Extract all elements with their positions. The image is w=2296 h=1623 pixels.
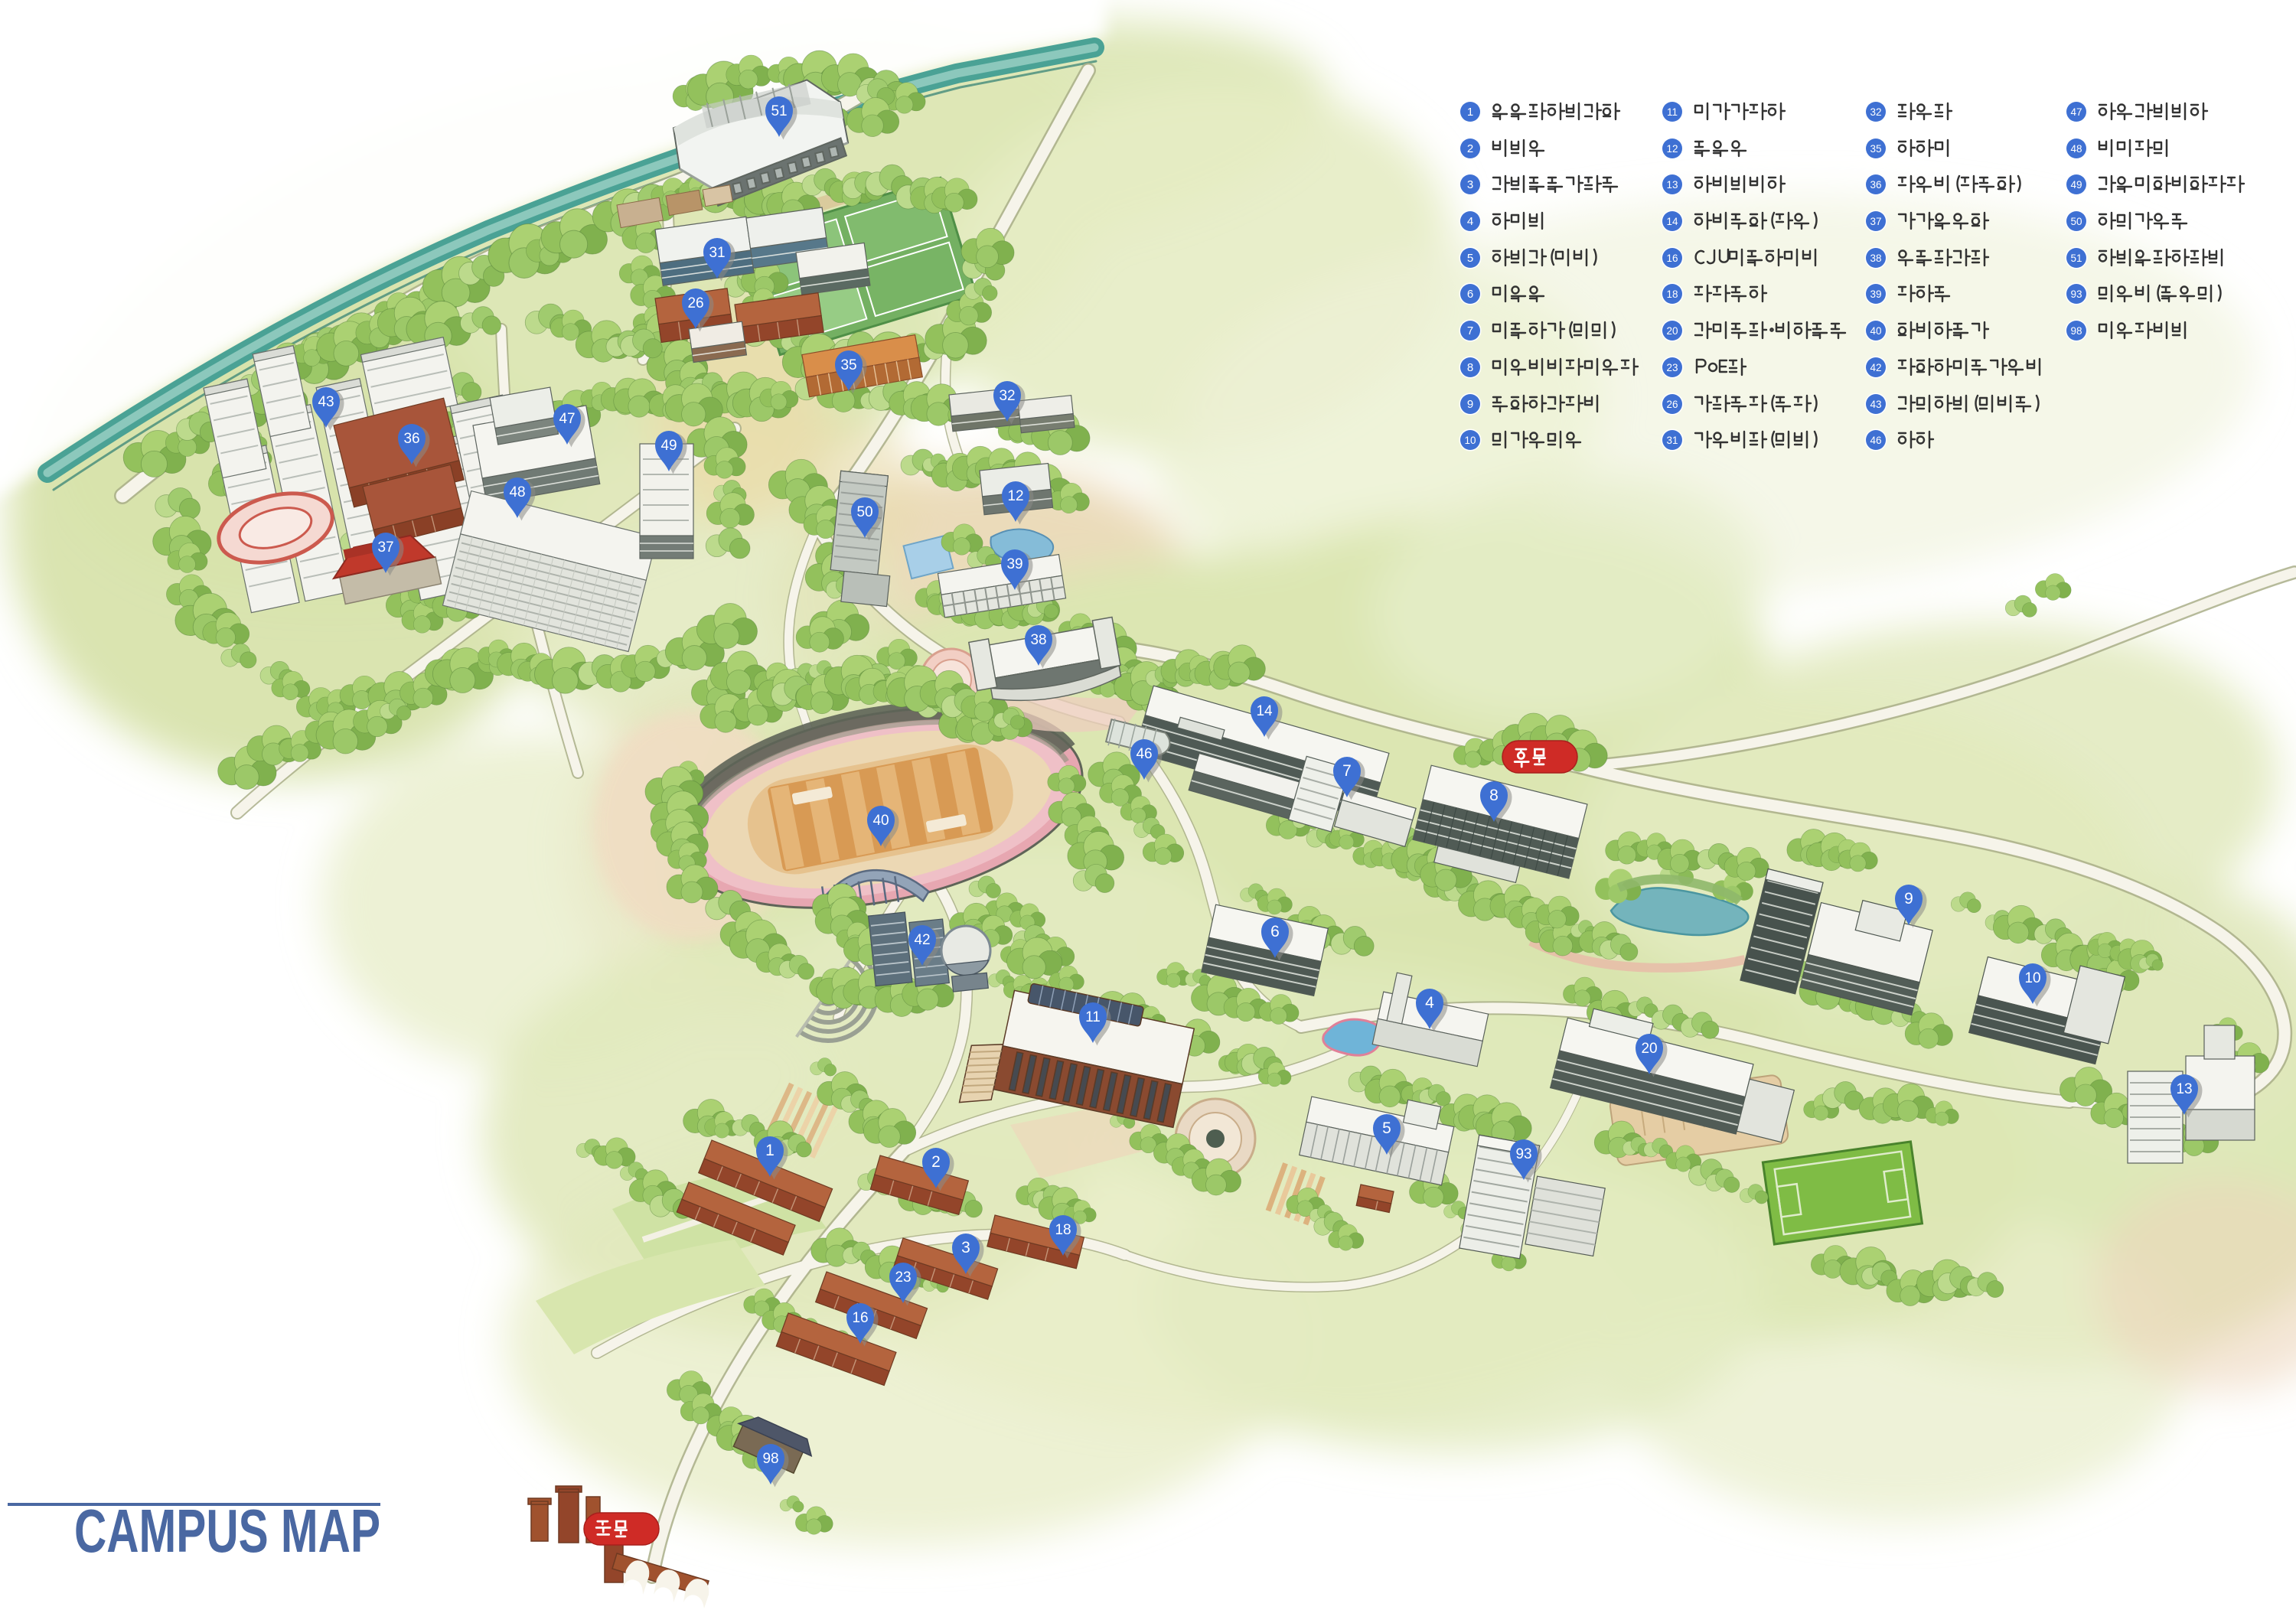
svg-text:36: 36 [403, 431, 419, 447]
svg-text:98: 98 [2070, 325, 2082, 337]
svg-text:23: 23 [895, 1269, 911, 1286]
svg-text:47: 47 [559, 411, 575, 427]
svg-text:38: 38 [1870, 253, 1881, 264]
svg-text:10: 10 [2024, 970, 2040, 986]
svg-text:5: 5 [1382, 1119, 1391, 1137]
svg-text:46: 46 [1136, 746, 1152, 762]
svg-text:6: 6 [1270, 923, 1280, 940]
svg-text:98: 98 [762, 1451, 778, 1467]
svg-text:16: 16 [852, 1310, 868, 1326]
svg-text:12: 12 [1007, 488, 1023, 504]
svg-text:12: 12 [1666, 143, 1678, 155]
svg-text:9: 9 [1467, 398, 1473, 411]
svg-text:43: 43 [318, 394, 334, 410]
svg-text:37: 37 [1870, 216, 1881, 227]
svg-text:42: 42 [1870, 362, 1881, 373]
svg-text:49: 49 [660, 438, 677, 454]
svg-text:8: 8 [1489, 787, 1499, 804]
svg-text:18: 18 [1666, 288, 1678, 300]
svg-text:3: 3 [961, 1239, 970, 1256]
svg-text:32: 32 [1870, 106, 1881, 118]
svg-text:50: 50 [856, 504, 872, 520]
svg-text:48: 48 [509, 484, 525, 500]
svg-text:36: 36 [1870, 179, 1881, 191]
svg-text:1: 1 [765, 1142, 775, 1159]
svg-text:93: 93 [2070, 288, 2082, 300]
svg-text:9: 9 [1904, 890, 1913, 908]
svg-text:93: 93 [1515, 1146, 1531, 1162]
svg-text:16: 16 [1666, 253, 1678, 264]
svg-text:31: 31 [709, 245, 725, 261]
svg-text:2: 2 [931, 1153, 941, 1171]
svg-text:46: 46 [1870, 435, 1881, 446]
svg-text:51: 51 [771, 103, 787, 119]
svg-text:6: 6 [1467, 288, 1473, 301]
svg-text:40: 40 [1870, 325, 1881, 337]
svg-text:38: 38 [1030, 632, 1046, 648]
svg-text:26: 26 [1666, 399, 1678, 410]
svg-text:1: 1 [1467, 106, 1473, 119]
svg-text:40: 40 [872, 813, 889, 829]
svg-text:4: 4 [1425, 994, 1434, 1012]
svg-text:14: 14 [1666, 216, 1678, 227]
svg-text:11: 11 [1085, 1009, 1101, 1025]
svg-text:42: 42 [914, 932, 930, 948]
svg-text:14: 14 [1256, 703, 1273, 719]
svg-text:13: 13 [2176, 1081, 2192, 1097]
svg-text:37: 37 [377, 539, 393, 556]
svg-text:4: 4 [1467, 215, 1473, 228]
svg-text:2: 2 [1467, 142, 1473, 155]
svg-text:35: 35 [840, 357, 856, 373]
svg-text:23: 23 [1666, 362, 1678, 373]
svg-text:39: 39 [1006, 556, 1022, 572]
svg-text:50: 50 [2070, 216, 2082, 227]
svg-text:7: 7 [1342, 762, 1352, 780]
svg-text:8: 8 [1467, 361, 1473, 374]
svg-text:13: 13 [1666, 179, 1678, 191]
svg-text:10: 10 [1464, 435, 1476, 446]
svg-text:47: 47 [2070, 106, 2082, 118]
svg-text:5: 5 [1467, 252, 1473, 265]
svg-text:48: 48 [2070, 143, 2082, 155]
svg-text:18: 18 [1055, 1222, 1071, 1238]
svg-text:20: 20 [1641, 1041, 1657, 1057]
svg-text:20: 20 [1666, 325, 1678, 337]
svg-text:51: 51 [2070, 253, 2082, 264]
svg-text:11: 11 [1667, 106, 1678, 118]
svg-text:7: 7 [1467, 324, 1473, 337]
svg-text:39: 39 [1870, 288, 1881, 300]
svg-text:49: 49 [2070, 179, 2082, 191]
svg-text:26: 26 [687, 295, 703, 311]
svg-text:43: 43 [1870, 399, 1881, 410]
svg-text:CAMPUS MAP: CAMPUS MAP [74, 1497, 380, 1565]
svg-text:31: 31 [1666, 435, 1678, 446]
svg-text:32: 32 [999, 388, 1015, 404]
svg-text:3: 3 [1467, 178, 1473, 191]
svg-text:35: 35 [1870, 143, 1881, 155]
